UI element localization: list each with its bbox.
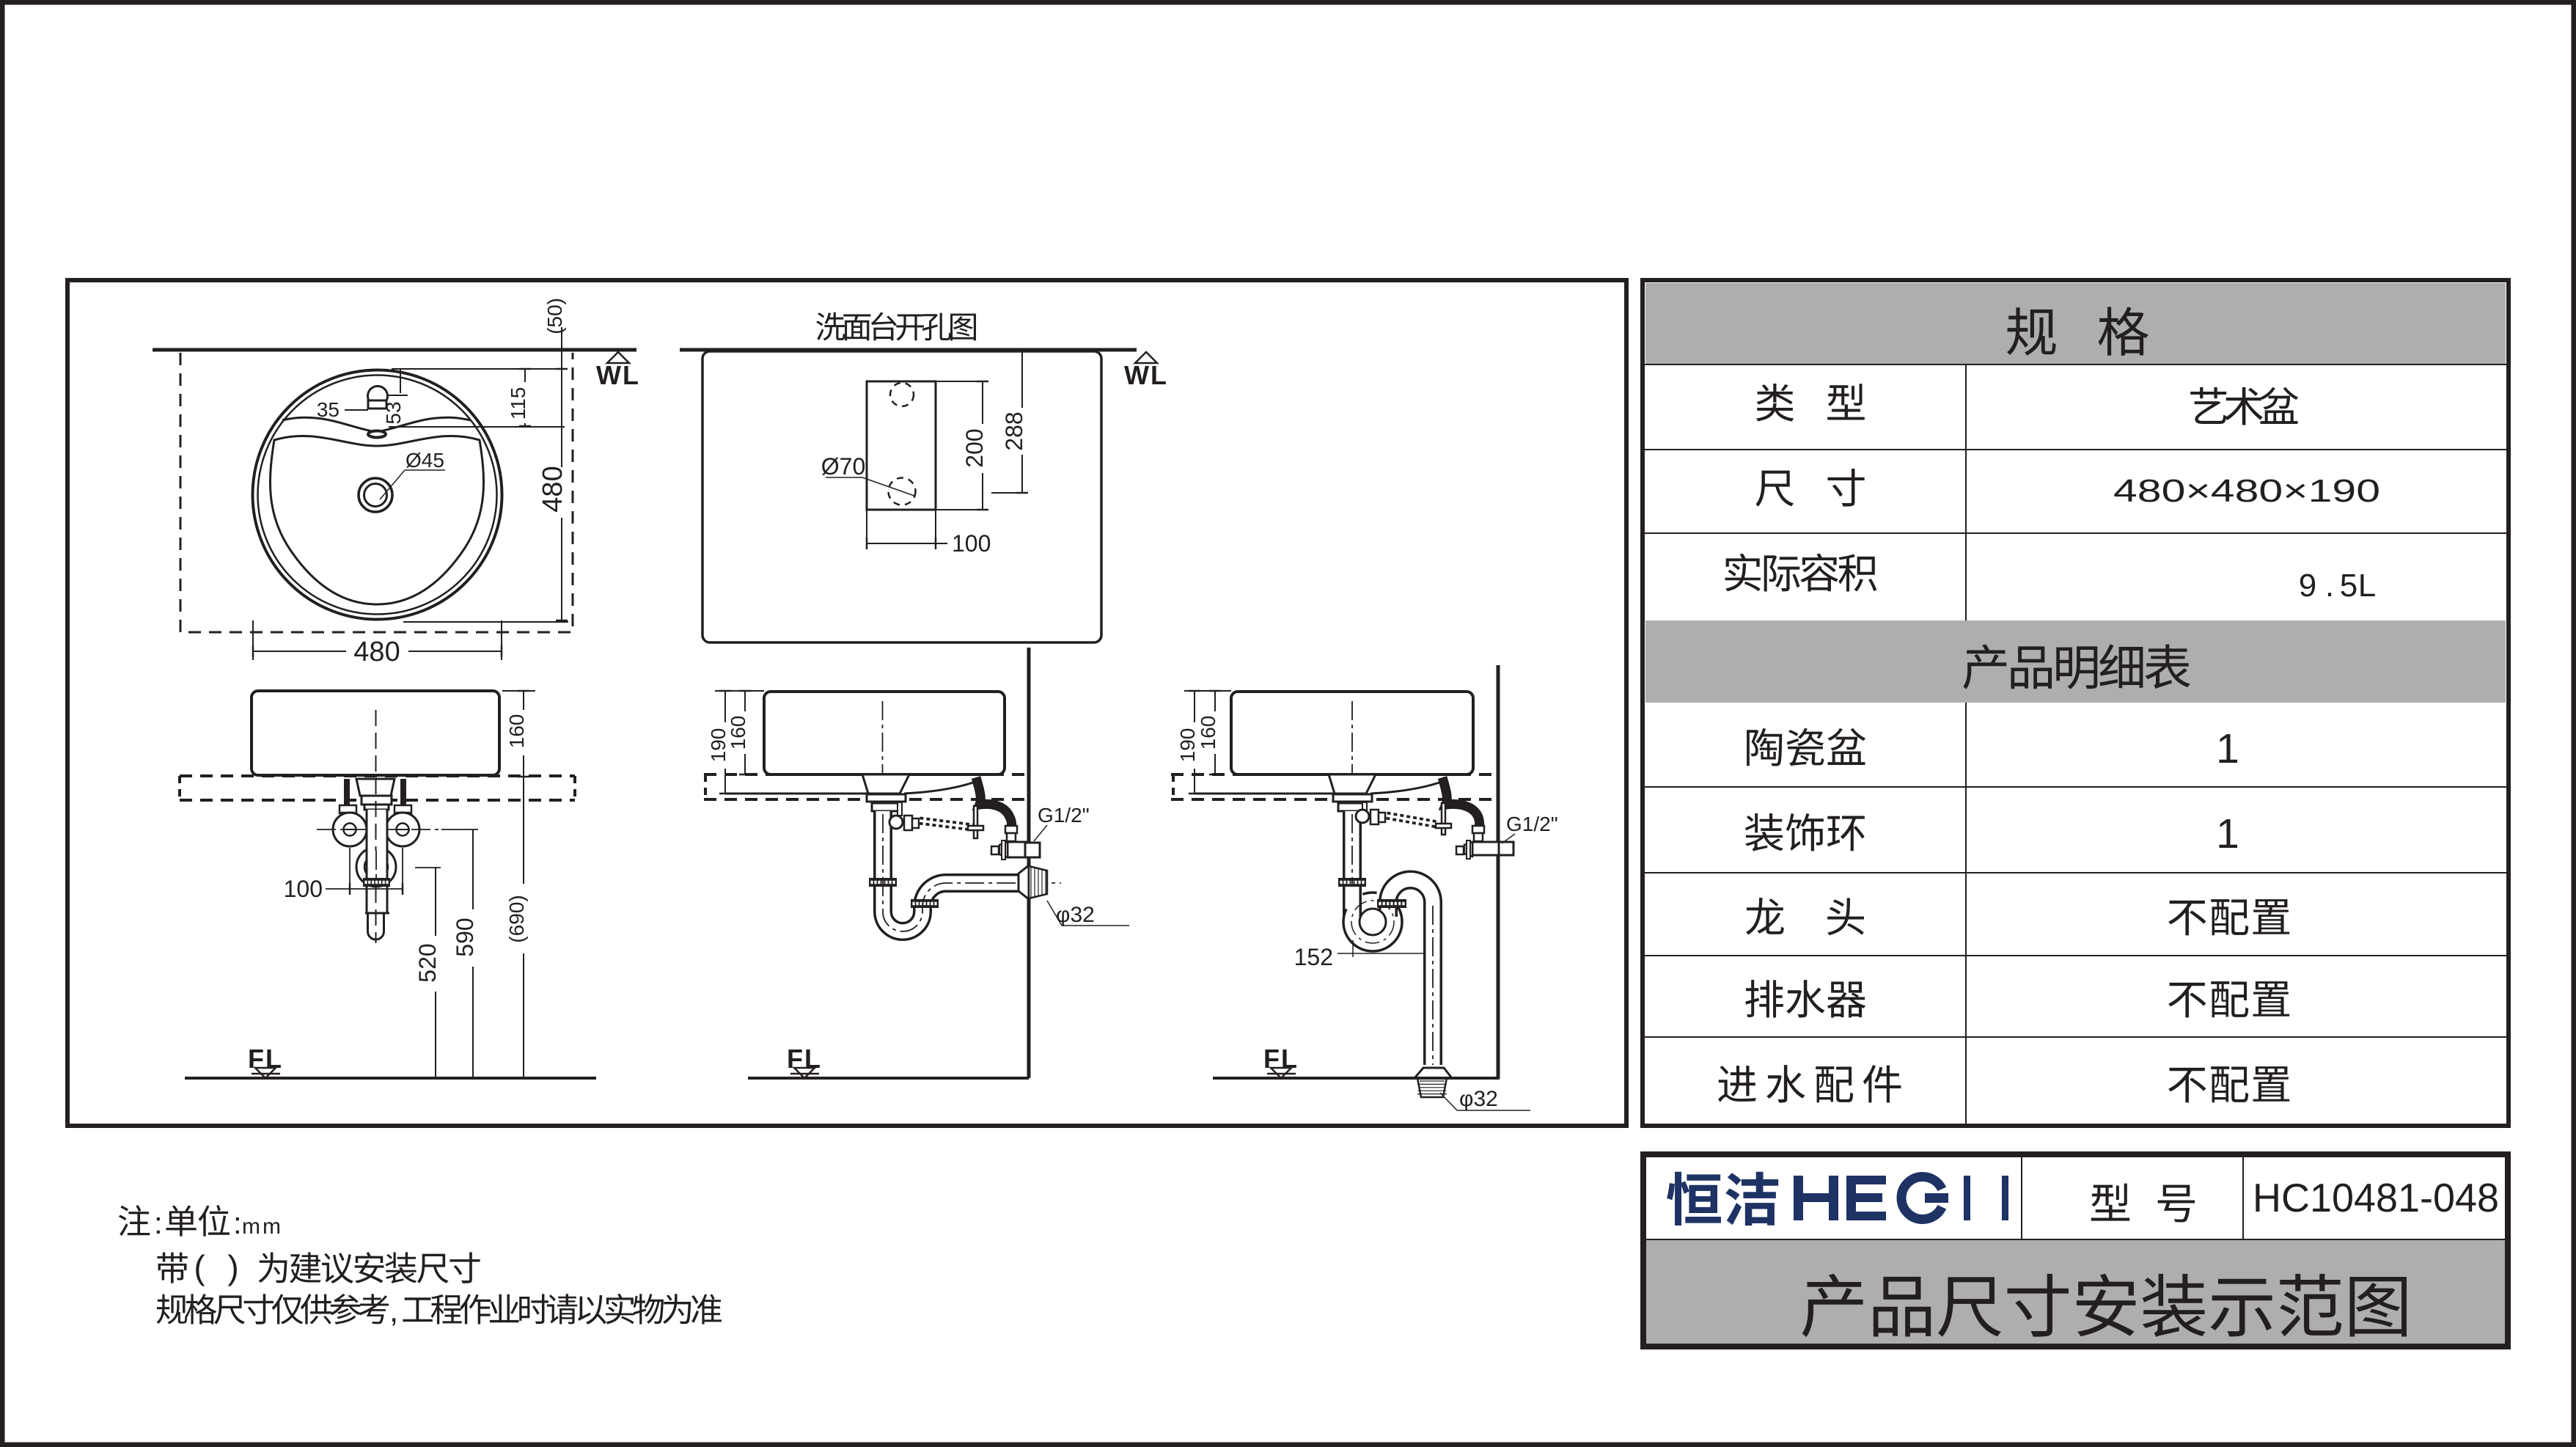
svg-text:φ32: φ32 [1459,1087,1498,1111]
svg-text:HC10481-048: HC10481-048 [2253,1175,2499,1220]
svg-text:): ) [227,1248,238,1286]
svg-text:115: 115 [507,387,529,420]
svg-text:9: 9 [2299,568,2316,604]
svg-text:WL: WL [1124,360,1168,390]
svg-text:100: 100 [284,876,323,902]
svg-text:100: 100 [952,530,991,557]
svg-text:(: ( [194,1248,205,1286]
svg-text::: : [233,1206,242,1240]
svg-text:.: . [2325,568,2334,604]
svg-text:35: 35 [317,398,340,421]
svg-text:288: 288 [1001,411,1027,450]
svg-text:Ø70: Ø70 [821,453,865,480]
svg-text:1: 1 [2216,725,2239,772]
svg-text:480×480×190: 480×480×190 [2113,473,2380,509]
svg-text:480: 480 [537,466,568,512]
svg-text:160: 160 [727,716,749,750]
svg-text:,: , [389,1293,398,1329]
svg-text::: : [154,1206,163,1240]
svg-text:L: L [2358,568,2376,604]
svg-text:160: 160 [505,714,528,749]
svg-text:152: 152 [1294,944,1333,970]
svg-text:480: 480 [353,637,400,667]
svg-text:(50): (50) [543,298,566,334]
svg-text:520: 520 [414,943,441,982]
svg-text:FL: FL [1263,1044,1299,1074]
svg-text:G1/2": G1/2" [1038,804,1090,827]
svg-text:FL: FL [787,1044,822,1074]
svg-text:5: 5 [2340,568,2357,604]
svg-text:Ø45: Ø45 [406,449,444,472]
svg-text:160: 160 [1197,716,1219,750]
svg-text:(690): (690) [505,895,528,942]
svg-text:200: 200 [961,428,988,467]
svg-text:FL: FL [248,1044,283,1074]
svg-text:WL: WL [596,360,640,390]
svg-text:1: 1 [2216,810,2239,857]
svg-text:φ32: φ32 [1056,903,1095,927]
svg-text:mm: mm [242,1215,283,1239]
svg-text:G1/2": G1/2" [1506,813,1558,835]
svg-text:590: 590 [452,917,478,956]
svg-text:53: 53 [382,401,405,424]
svg-text:190: 190 [1176,728,1199,763]
